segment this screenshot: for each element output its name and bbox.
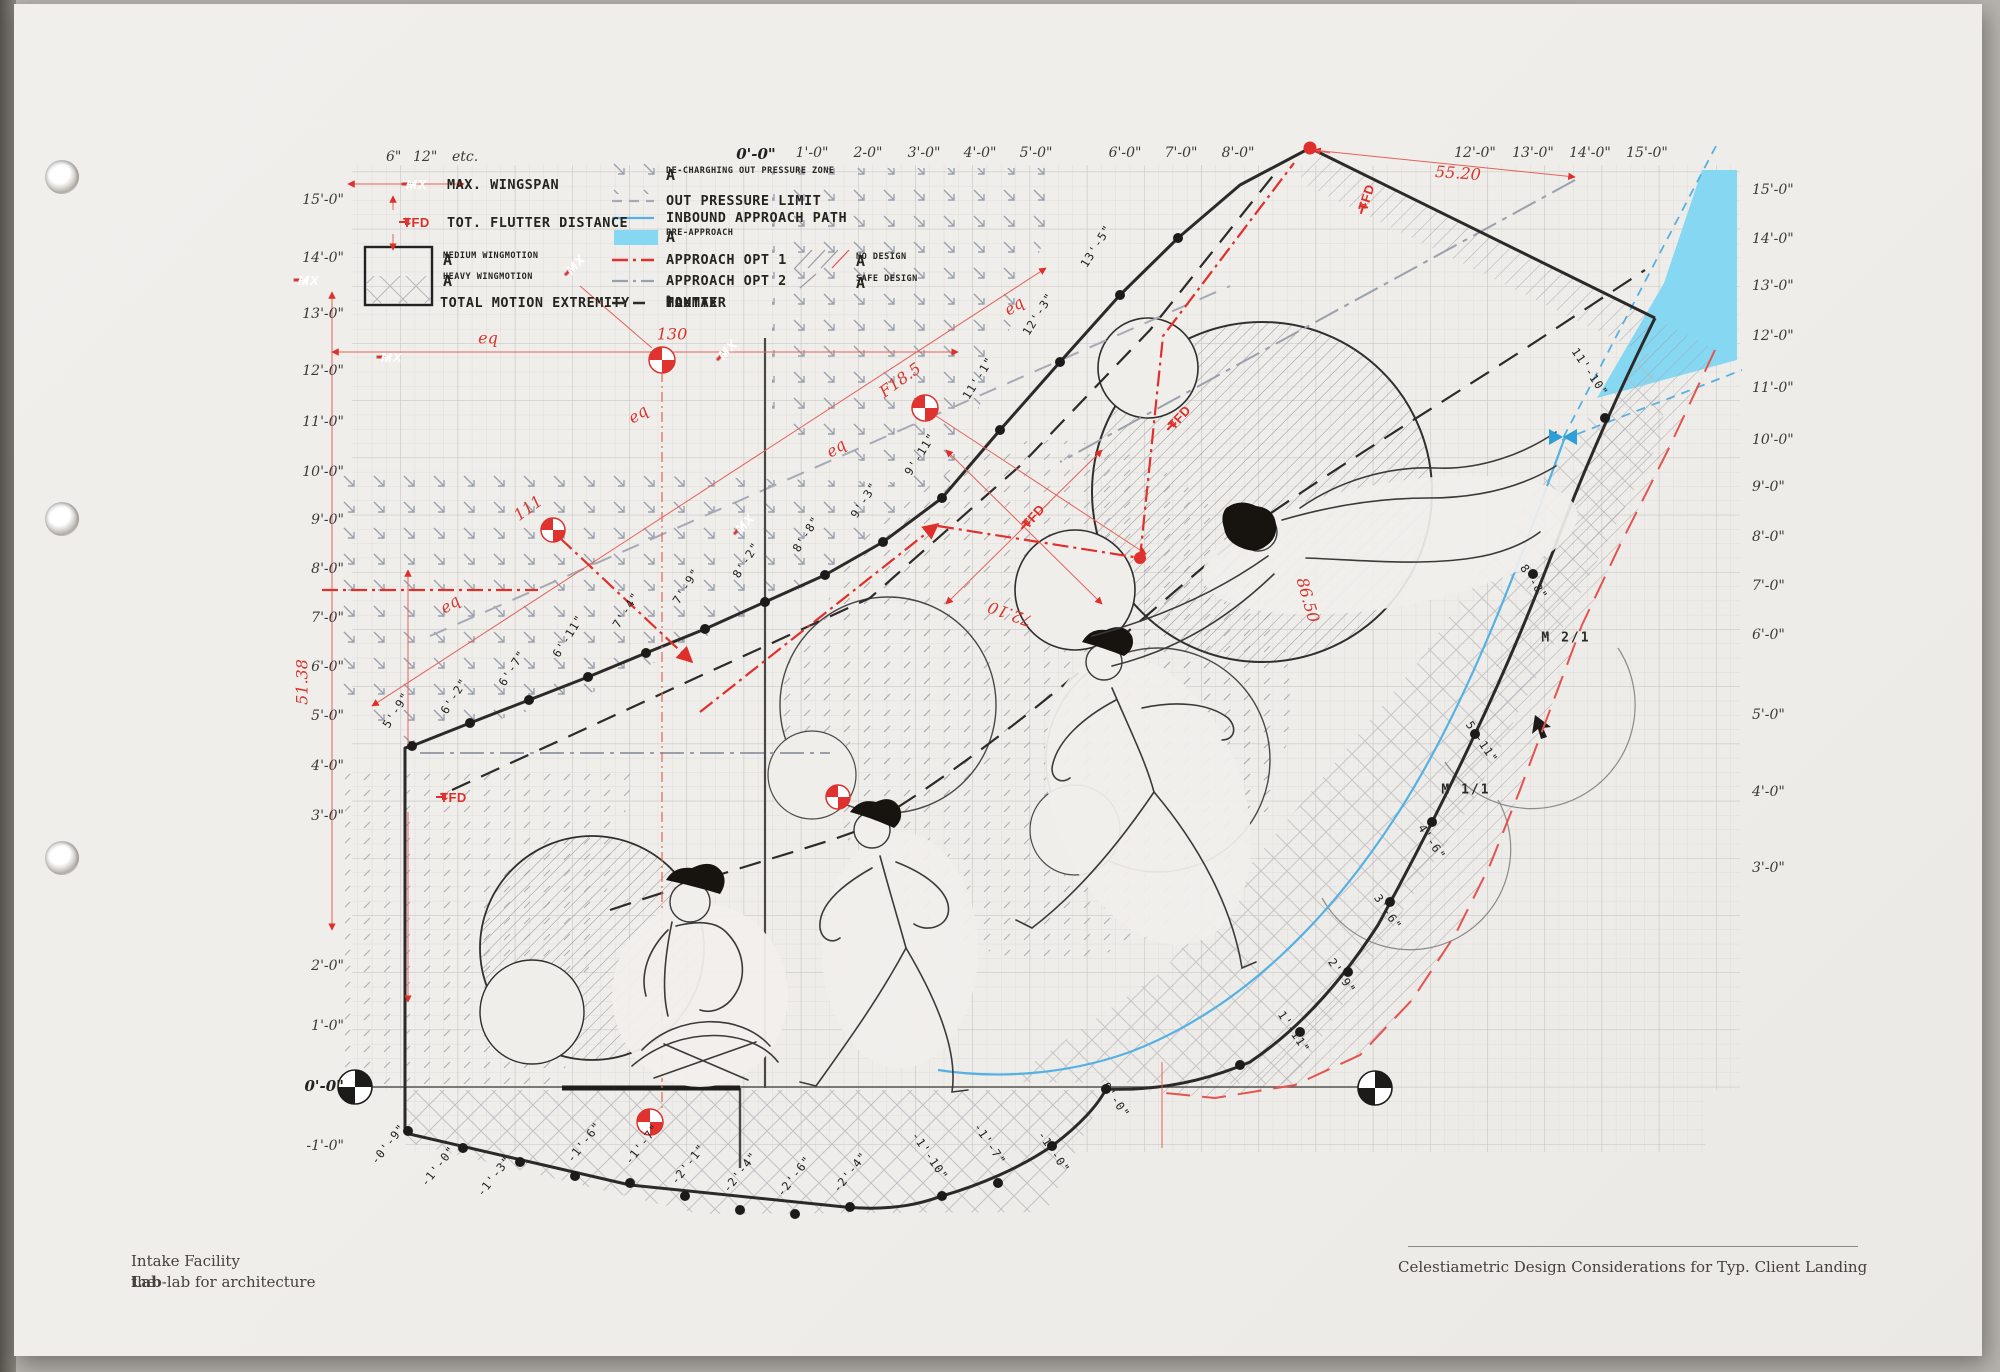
dimension-value: F18.5 [876, 359, 925, 402]
right-axis-label: 15'-0" [1752, 182, 1794, 198]
max-wingspan-stamp: ←MX→ [294, 279, 302, 281]
left-axis-label: 0'-0" [304, 1077, 344, 1095]
dimension-label: M 1/1 [1441, 783, 1490, 798]
top-ruler-label: 15'-0" [1626, 145, 1668, 161]
dimension-label: -1'-0" [418, 1143, 458, 1189]
flutter-distance-stamp: ⇅TFD [1021, 522, 1028, 529]
left-axis-label: -1'-0" [306, 1138, 344, 1154]
right-axis-label: 13'-0" [1752, 278, 1794, 294]
right-axis-label: 4'-0" [1752, 784, 1785, 800]
top-ruler-label: 6'-0" [1109, 145, 1142, 161]
dimension-value: eq [823, 435, 850, 462]
top-ruler-label: 1'-0" [796, 145, 829, 161]
right-axis-label: 11'-0" [1752, 380, 1794, 396]
dimension-label: 1'-11" [1275, 1008, 1313, 1055]
dimension-label: -1'-7" [622, 1121, 662, 1167]
dimension-label: -2'-4" [830, 1149, 870, 1195]
dimension-value: eq [625, 401, 652, 428]
left-axis-label: 6'-0" [311, 659, 344, 675]
left-axis-label: 7'-0" [311, 610, 344, 626]
left-axis-label: 8'-0" [311, 561, 344, 577]
dimension-value: eq [437, 591, 464, 618]
dimension-label: -2'-6" [774, 1153, 814, 1199]
flutter-distance-stamp: ⇅TFD [1360, 206, 1364, 214]
top-ruler-label: 14'-0" [1569, 145, 1611, 161]
dimension-label: -2'-4" [720, 1149, 760, 1195]
stamp-label: TFD [1164, 402, 1193, 432]
dimension-label: -0'-9" [368, 1121, 408, 1167]
left-axis-label: 12'-0" [302, 363, 344, 379]
flutter-distance-stamp: ⇅TFD [436, 796, 444, 798]
scale-note: 12" [413, 149, 437, 165]
dimension-label: -1'-7" [971, 1120, 1009, 1167]
dimension-label: 8'-8" [790, 513, 823, 554]
left-axis-label: 9'-0" [311, 512, 344, 528]
left-axis-label: 14'-0" [302, 250, 344, 266]
dimension-value: 111 [510, 491, 546, 524]
dimension-label: -1'-6" [564, 1119, 604, 1165]
flutter-distance-stamp: ⇅TFD [1167, 423, 1174, 430]
dimension-label: 7'-4" [610, 589, 643, 630]
max-wingspan-stamp: ←MX→ [377, 356, 385, 358]
right-axis-label: 7'-0" [1752, 578, 1785, 594]
max-wingspan-stamp: ←MX→ [717, 353, 724, 360]
dimension-value: 51.38 [293, 659, 312, 705]
top-ruler-label: 13'-0" [1512, 145, 1554, 161]
dimension-value: 130 [657, 325, 688, 344]
flutter-distance-stamp: ⇅TFD [399, 221, 407, 223]
firm-name: theLab-lab for architecture [131, 1273, 162, 1291]
dimension-value: eq [1001, 293, 1028, 320]
dimension-label: 6'-2" [438, 675, 471, 716]
dimension-label: 9'-3" [848, 479, 881, 520]
stamp-label: TFD [1018, 501, 1047, 531]
annotation-layer: MAX. WINGSPAN TOT. FLUTTER DISTANCE AMED… [0, 0, 2000, 1372]
top-ruler-label: 0'-0" [736, 145, 776, 163]
dimension-label: 6'-11" [549, 612, 586, 660]
max-wingspan-stamp: ←MX→ [565, 268, 572, 275]
dimension-label: -1'-10" [909, 1129, 952, 1183]
right-axis-label: 9'-0" [1752, 479, 1785, 495]
right-axis-label: 14'-0" [1752, 231, 1794, 247]
right-axis-label: 5'-0" [1752, 707, 1785, 723]
top-ruler-label: 5'-0" [1020, 145, 1053, 161]
dimension-label: 11'-10" [1569, 345, 1612, 399]
dimension-value: 72.10 [985, 597, 1035, 631]
dimension-label: 7'-9" [670, 565, 703, 606]
right-axis-label: 12'-0" [1752, 328, 1794, 344]
dimension-label: 11'-1" [959, 354, 996, 402]
top-ruler-label: 12'-0" [1454, 145, 1496, 161]
max-wingspan-stamp: ←MX→ [402, 183, 410, 185]
top-ruler-label: 7'-0" [1165, 145, 1198, 161]
dimension-label: 5'-11" [1463, 718, 1501, 765]
left-axis-label: 11'-0" [302, 414, 344, 430]
dimension-label: 6'-7" [496, 647, 529, 688]
dimension-value: 55.20 [1434, 162, 1481, 184]
top-ruler-label: 3'-0" [908, 145, 941, 161]
left-axis-label: 5'-0" [311, 708, 344, 724]
arrow-icon: → [406, 179, 415, 190]
stamp-label: TFD [403, 215, 430, 230]
right-axis-label: 6'-0" [1752, 627, 1785, 643]
right-axis-label: 10'-0" [1752, 432, 1794, 448]
arrow-icon: → [381, 352, 390, 363]
scale-note: etc. [452, 149, 478, 165]
top-ruler-label: 8'-0" [1222, 145, 1255, 161]
left-axis-label: 1'-0" [311, 1018, 344, 1034]
left-axis-label: 13'-0" [302, 306, 344, 322]
dimension-label: 8'-2" [730, 539, 763, 580]
dimension-value: 86.50 [1293, 575, 1324, 624]
dimension-label: 8'-8" [1517, 562, 1551, 603]
stamp-label: TFD [1355, 182, 1377, 212]
arrow-icon: → [298, 275, 307, 286]
right-axis-label: 8'-0" [1752, 529, 1785, 545]
dimension-label: 4'-6" [1415, 822, 1449, 863]
caption-rule [1408, 1246, 1858, 1247]
left-axis-label: 2'-0" [311, 958, 344, 974]
max-wingspan-stamp: ←MX→ [734, 527, 741, 534]
top-ruler-label: 2-0" [854, 145, 883, 161]
dimension-label: 12'-3" [1019, 290, 1056, 338]
left-axis-label: 3'-0" [311, 808, 344, 824]
stamp-label: TFD [440, 790, 467, 805]
scale-note: 6" [386, 149, 401, 165]
dimension-label: 9'-11" [901, 430, 938, 478]
dimension-label: 2'-9" [1325, 956, 1359, 997]
dimension-label: 3'-6" [1371, 892, 1405, 933]
dimension-label: 5'-9" [380, 689, 413, 730]
left-axis-label: 10'-0" [302, 464, 344, 480]
dimension-label: M 2/1 [1541, 631, 1590, 646]
sheet-caption: Celestiametric Design Considerations for… [1398, 1258, 1858, 1276]
left-axis-label: 15'-0" [302, 192, 344, 208]
dimension-label: 13'-5" [1077, 222, 1114, 270]
dimension-label: 0'-0" [1099, 1080, 1133, 1121]
left-axis-label: 4'-0" [311, 758, 344, 774]
right-axis-label: 3'-0" [1752, 860, 1785, 876]
top-ruler-label: 4'-0" [964, 145, 997, 161]
dimension-label: -1'-3" [474, 1153, 514, 1199]
dimension-label: -1'-0" [1035, 1128, 1073, 1175]
dimension-value: eq [478, 329, 498, 348]
dimension-label: -2'-1" [668, 1141, 708, 1187]
